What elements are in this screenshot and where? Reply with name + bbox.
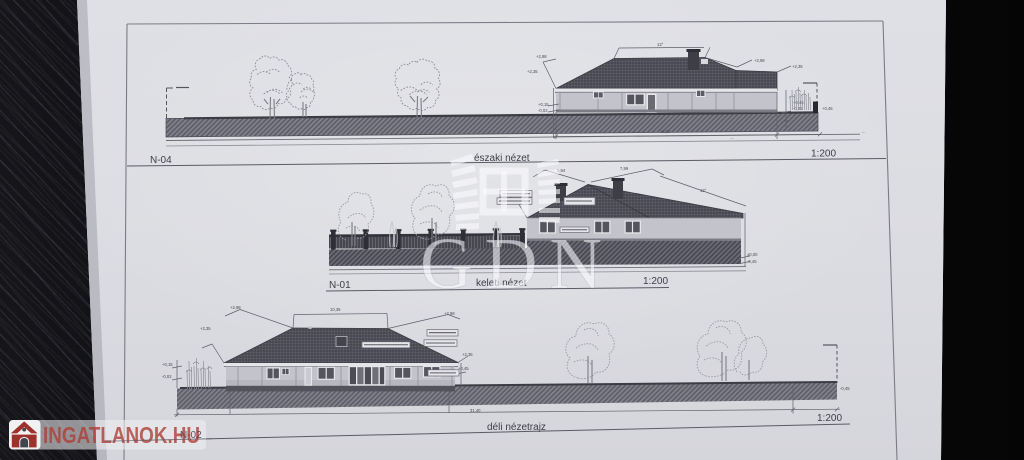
svg-text:+0,15: +0,15: [538, 102, 549, 107]
svg-text:31,40: 31,40: [470, 408, 481, 413]
svg-text:+2,98: +2,98: [230, 305, 241, 310]
svg-text:N-01: N-01: [329, 280, 351, 291]
svg-text:N-04: N-04: [150, 155, 172, 166]
svg-text:-0,02: -0,02: [162, 374, 172, 379]
svg-text:10,35: 10,35: [330, 307, 341, 312]
svg-text:INGATLANOK.HU: INGATLANOK.HU: [43, 422, 200, 448]
svg-text:+2,35: +2,35: [792, 64, 803, 69]
svg-text:-0,02: -0,02: [538, 108, 548, 113]
svg-text:+0,15: +0,15: [162, 362, 173, 367]
svg-text:+2,35: +2,35: [200, 326, 211, 331]
svg-text:±0,00: ±0,00: [747, 252, 758, 257]
svg-text:1:200: 1:200: [817, 413, 842, 424]
svg-text:+0,45: +0,45: [458, 366, 469, 371]
svg-text:+2,35: +2,35: [527, 69, 538, 74]
svg-text:12°: 12°: [700, 188, 707, 193]
svg-text:12°: 12°: [657, 42, 664, 47]
svg-text:+0,45: +0,45: [822, 106, 833, 111]
svg-text:+2,35: +2,35: [462, 352, 473, 357]
svg-text:-0,45: -0,45: [840, 386, 850, 391]
svg-text:1:200: 1:200: [811, 149, 836, 160]
svg-text:-.-: -.-: [730, 135, 734, 140]
svg-text:7,99: 7,99: [620, 166, 629, 171]
svg-text:+2,98: +2,98: [444, 311, 455, 316]
svg-text:GDN: GDN: [420, 223, 614, 304]
svg-text:-..: -..: [862, 129, 866, 134]
svg-text:+2,98: +2,98: [754, 58, 765, 63]
svg-text:-0,45: -0,45: [747, 259, 757, 264]
svg-text:15,90: 15,90: [660, 129, 671, 134]
svg-text:+2,98: +2,98: [536, 54, 547, 59]
svg-text:1:200: 1:200: [643, 276, 668, 287]
